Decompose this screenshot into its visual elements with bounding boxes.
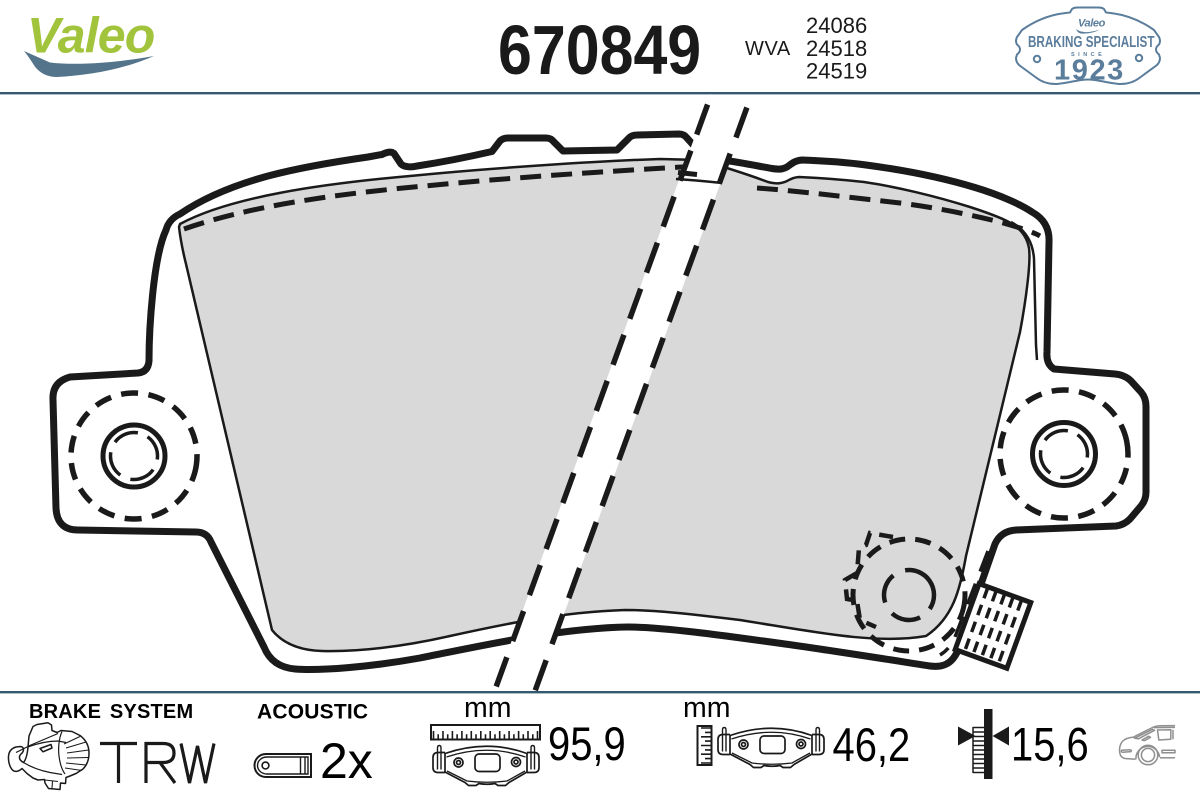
svg-text:mm: mm: [683, 692, 730, 724]
svg-text:ACOUSTIC: ACOUSTIC: [257, 701, 368, 724]
svg-text:BRAKE SYSTEM: BRAKE SYSTEM: [29, 701, 193, 723]
svg-text:95,9: 95,9: [548, 719, 626, 771]
svg-text:BRAKING SPECIALIST: BRAKING SPECIALIST: [1028, 32, 1155, 50]
svg-text:Valeo: Valeo: [1078, 18, 1106, 30]
svg-text:mm: mm: [464, 692, 511, 724]
svg-text:24518: 24518: [806, 36, 867, 61]
svg-text:670849: 670849: [498, 11, 701, 89]
svg-text:15,6: 15,6: [1011, 720, 1089, 772]
svg-text:46,2: 46,2: [833, 720, 911, 772]
svg-text:Valeo: Valeo: [27, 8, 155, 64]
svg-text:24086: 24086: [806, 13, 867, 38]
svg-text:WVA: WVA: [745, 38, 791, 60]
svg-text:24519: 24519: [806, 59, 867, 84]
svg-text:1923: 1923: [1054, 55, 1125, 87]
svg-text:2x: 2x: [320, 733, 373, 789]
